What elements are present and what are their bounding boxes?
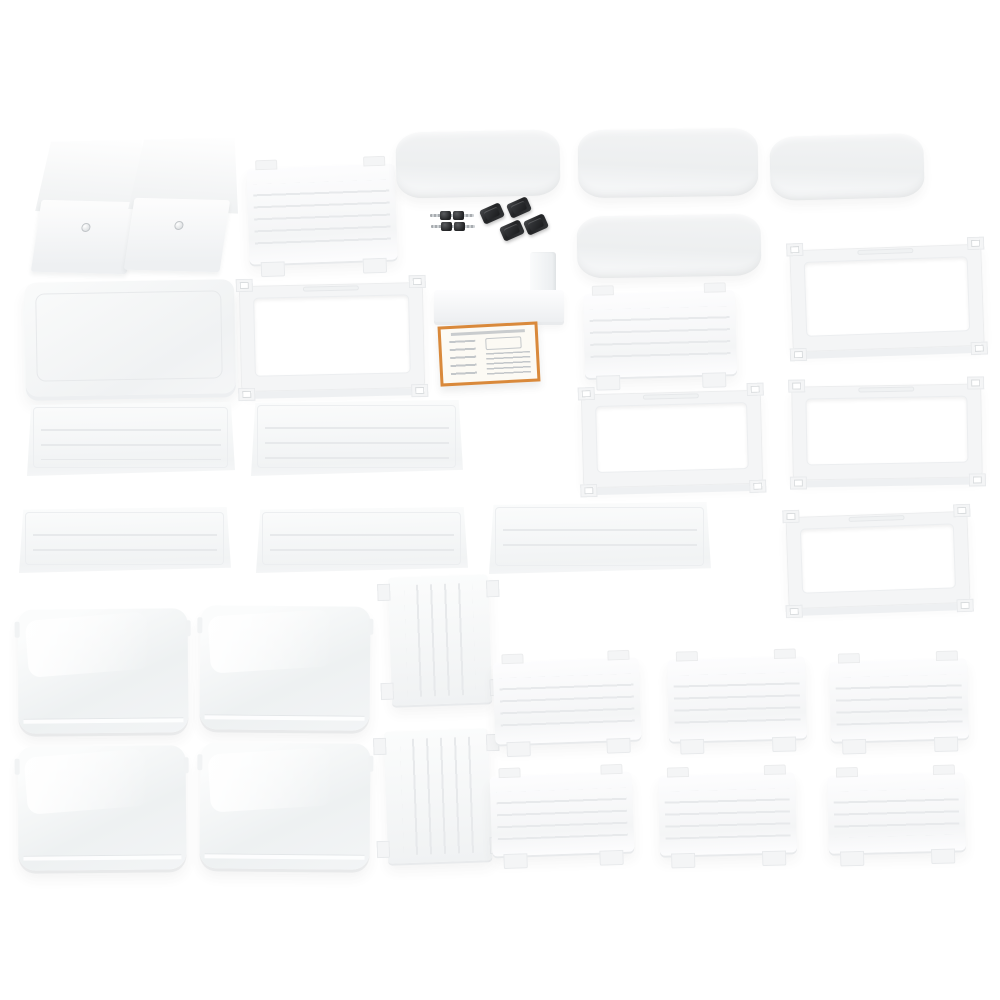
screw-pair-2 xyxy=(431,222,475,231)
manual-diagram xyxy=(449,340,477,377)
tray-groove xyxy=(35,290,223,381)
shelf-board-4 xyxy=(256,507,468,573)
divider-panel-2 xyxy=(583,290,737,378)
frosted-bin-3 xyxy=(17,745,186,870)
mounting-clip-1 xyxy=(479,202,505,225)
flat-top-tray xyxy=(24,279,236,397)
manual-title-line xyxy=(451,329,525,336)
mounting-clip-3 xyxy=(499,219,525,242)
trim-panel-4 xyxy=(576,213,761,278)
instruction-sheet xyxy=(437,321,540,386)
shelf-board-3 xyxy=(19,507,231,573)
side-panel-3 xyxy=(829,658,969,742)
frosted-bin-1 xyxy=(17,608,188,733)
trim-panel-3 xyxy=(769,133,925,201)
frosted-bin-2 xyxy=(199,605,370,730)
bin-front xyxy=(124,198,231,272)
shelf-board-1 xyxy=(27,402,235,476)
shelf-board-2 xyxy=(251,400,463,476)
screw-pair-1 xyxy=(430,211,474,220)
mounting-frame-3 xyxy=(581,390,763,489)
l-bracket xyxy=(434,252,564,322)
mounting-frame-1 xyxy=(789,244,984,353)
ribbed-panel-vertical-1 xyxy=(388,574,492,705)
divider-panel-1 xyxy=(246,163,397,264)
shelf-board-5 xyxy=(489,502,711,574)
product-photo xyxy=(0,0,1000,1000)
frosted-bin-4 xyxy=(199,742,370,869)
rivet xyxy=(81,223,91,232)
trim-panel-1 xyxy=(395,129,560,198)
mounting-clip-2 xyxy=(506,196,532,219)
door-bin-2 xyxy=(126,138,238,271)
bin-front xyxy=(31,200,138,274)
mounting-frame-5 xyxy=(785,511,970,609)
manual-figure xyxy=(485,336,522,350)
side-panel-2 xyxy=(667,656,807,742)
rivet xyxy=(174,221,184,230)
side-panel-5 xyxy=(658,772,797,856)
manual-text-lines xyxy=(486,351,531,375)
screw-head xyxy=(441,222,452,231)
screw-head xyxy=(454,222,465,231)
side-panel-4 xyxy=(490,772,635,857)
mounting-clip-4 xyxy=(523,213,549,236)
side-panel-6 xyxy=(827,772,966,854)
screw-head xyxy=(453,211,464,220)
ribbed-panel-vertical-2 xyxy=(384,728,493,864)
screw-head xyxy=(440,211,451,220)
side-panel-1 xyxy=(493,657,642,744)
mounting-frame-4 xyxy=(791,383,983,480)
mounting-frame-2 xyxy=(239,282,425,392)
trim-panel-2 xyxy=(578,128,759,199)
